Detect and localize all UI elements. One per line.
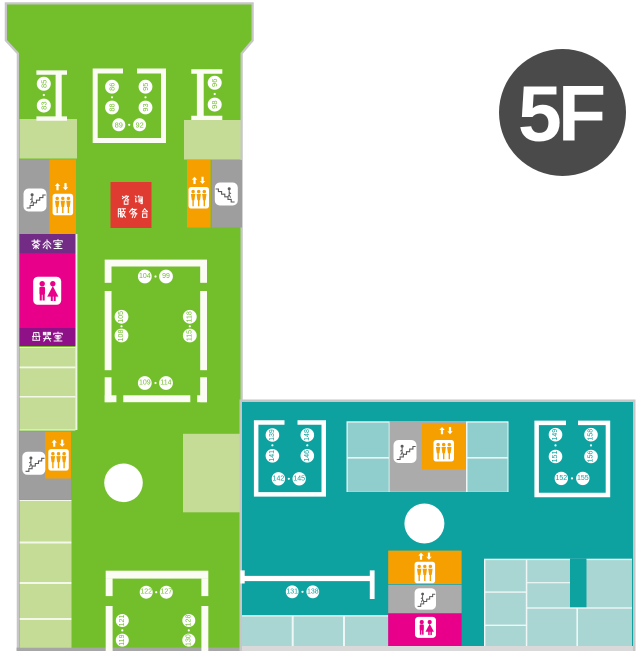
svg-text:149: 149 (552, 429, 559, 441)
svg-text:146: 146 (304, 450, 311, 462)
svg-text:88: 88 (108, 103, 117, 111)
svg-text:127: 127 (160, 589, 172, 596)
svg-text:138: 138 (307, 588, 319, 595)
svg-text:85: 85 (39, 80, 48, 88)
svg-text:115: 115 (186, 330, 193, 341)
svg-text:98: 98 (210, 100, 219, 108)
svg-text:148: 148 (304, 429, 311, 441)
svg-text:104: 104 (139, 273, 151, 280)
svg-text:86: 86 (108, 83, 117, 91)
svg-text:99: 99 (162, 273, 170, 280)
svg-text:89: 89 (115, 120, 123, 129)
svg-text:141: 141 (269, 450, 276, 462)
svg-text:95: 95 (141, 83, 150, 91)
svg-text:93: 93 (141, 103, 150, 111)
svg-text:108: 108 (118, 330, 125, 342)
svg-text:131: 131 (286, 588, 298, 595)
svg-text:105: 105 (118, 311, 125, 323)
svg-text:96: 96 (210, 79, 219, 87)
svg-text:83: 83 (39, 101, 48, 109)
svg-text:92: 92 (135, 120, 143, 129)
svg-text:122: 122 (140, 589, 152, 596)
svg-text:121: 121 (119, 615, 126, 627)
svg-text:142: 142 (273, 475, 285, 482)
svg-text:130: 130 (185, 634, 192, 646)
svg-text:158: 158 (588, 429, 595, 441)
svg-text:114: 114 (160, 380, 171, 387)
svg-text:5F: 5F (518, 69, 604, 158)
svg-text:139: 139 (269, 429, 276, 441)
svg-text:155: 155 (577, 475, 589, 482)
svg-text:156: 156 (588, 451, 595, 463)
svg-text:128: 128 (185, 615, 192, 627)
svg-text:152: 152 (555, 475, 567, 482)
svg-text:145: 145 (293, 475, 305, 482)
svg-text:119: 119 (119, 634, 126, 645)
svg-text:109: 109 (139, 380, 151, 387)
svg-text:151: 151 (552, 451, 559, 463)
svg-text:118: 118 (186, 311, 193, 322)
